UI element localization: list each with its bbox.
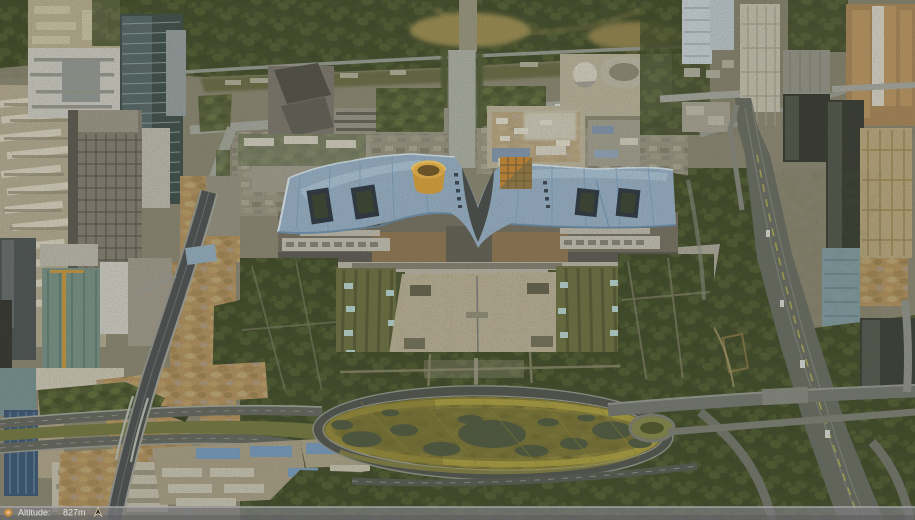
svg-text:827m: 827m bbox=[63, 508, 86, 518]
svg-text:Altitude:: Altitude: bbox=[18, 508, 51, 518]
